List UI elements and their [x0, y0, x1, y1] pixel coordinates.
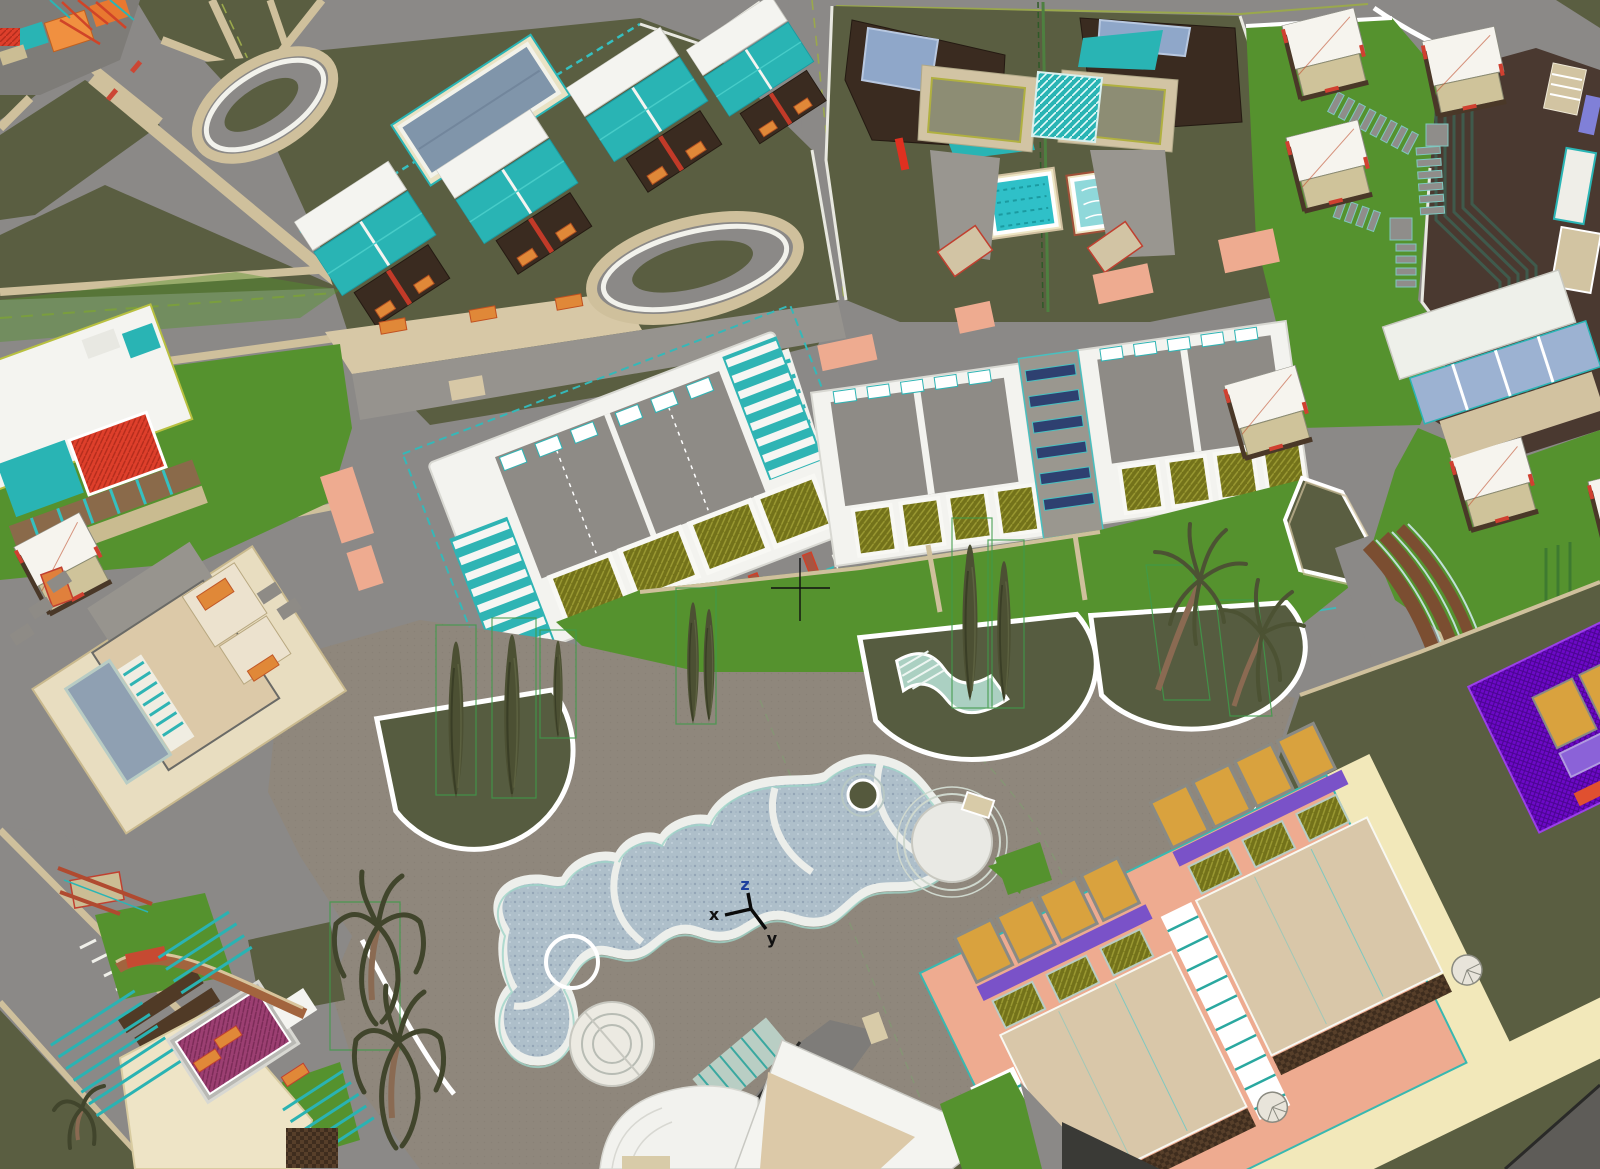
- canopy-2[interactable]: [1420, 26, 1510, 116]
- axis-y-label: y: [767, 929, 778, 948]
- round-deck-south: [570, 1002, 654, 1086]
- 3d-viewport[interactable]: z x y: [0, 0, 1600, 1169]
- axis-z-label: z: [740, 875, 749, 894]
- pool-island: [848, 780, 878, 810]
- teal-deck: [1032, 72, 1102, 142]
- axis-x-label: x: [709, 905, 720, 924]
- scene-canvas[interactable]: z x y: [0, 0, 1600, 1169]
